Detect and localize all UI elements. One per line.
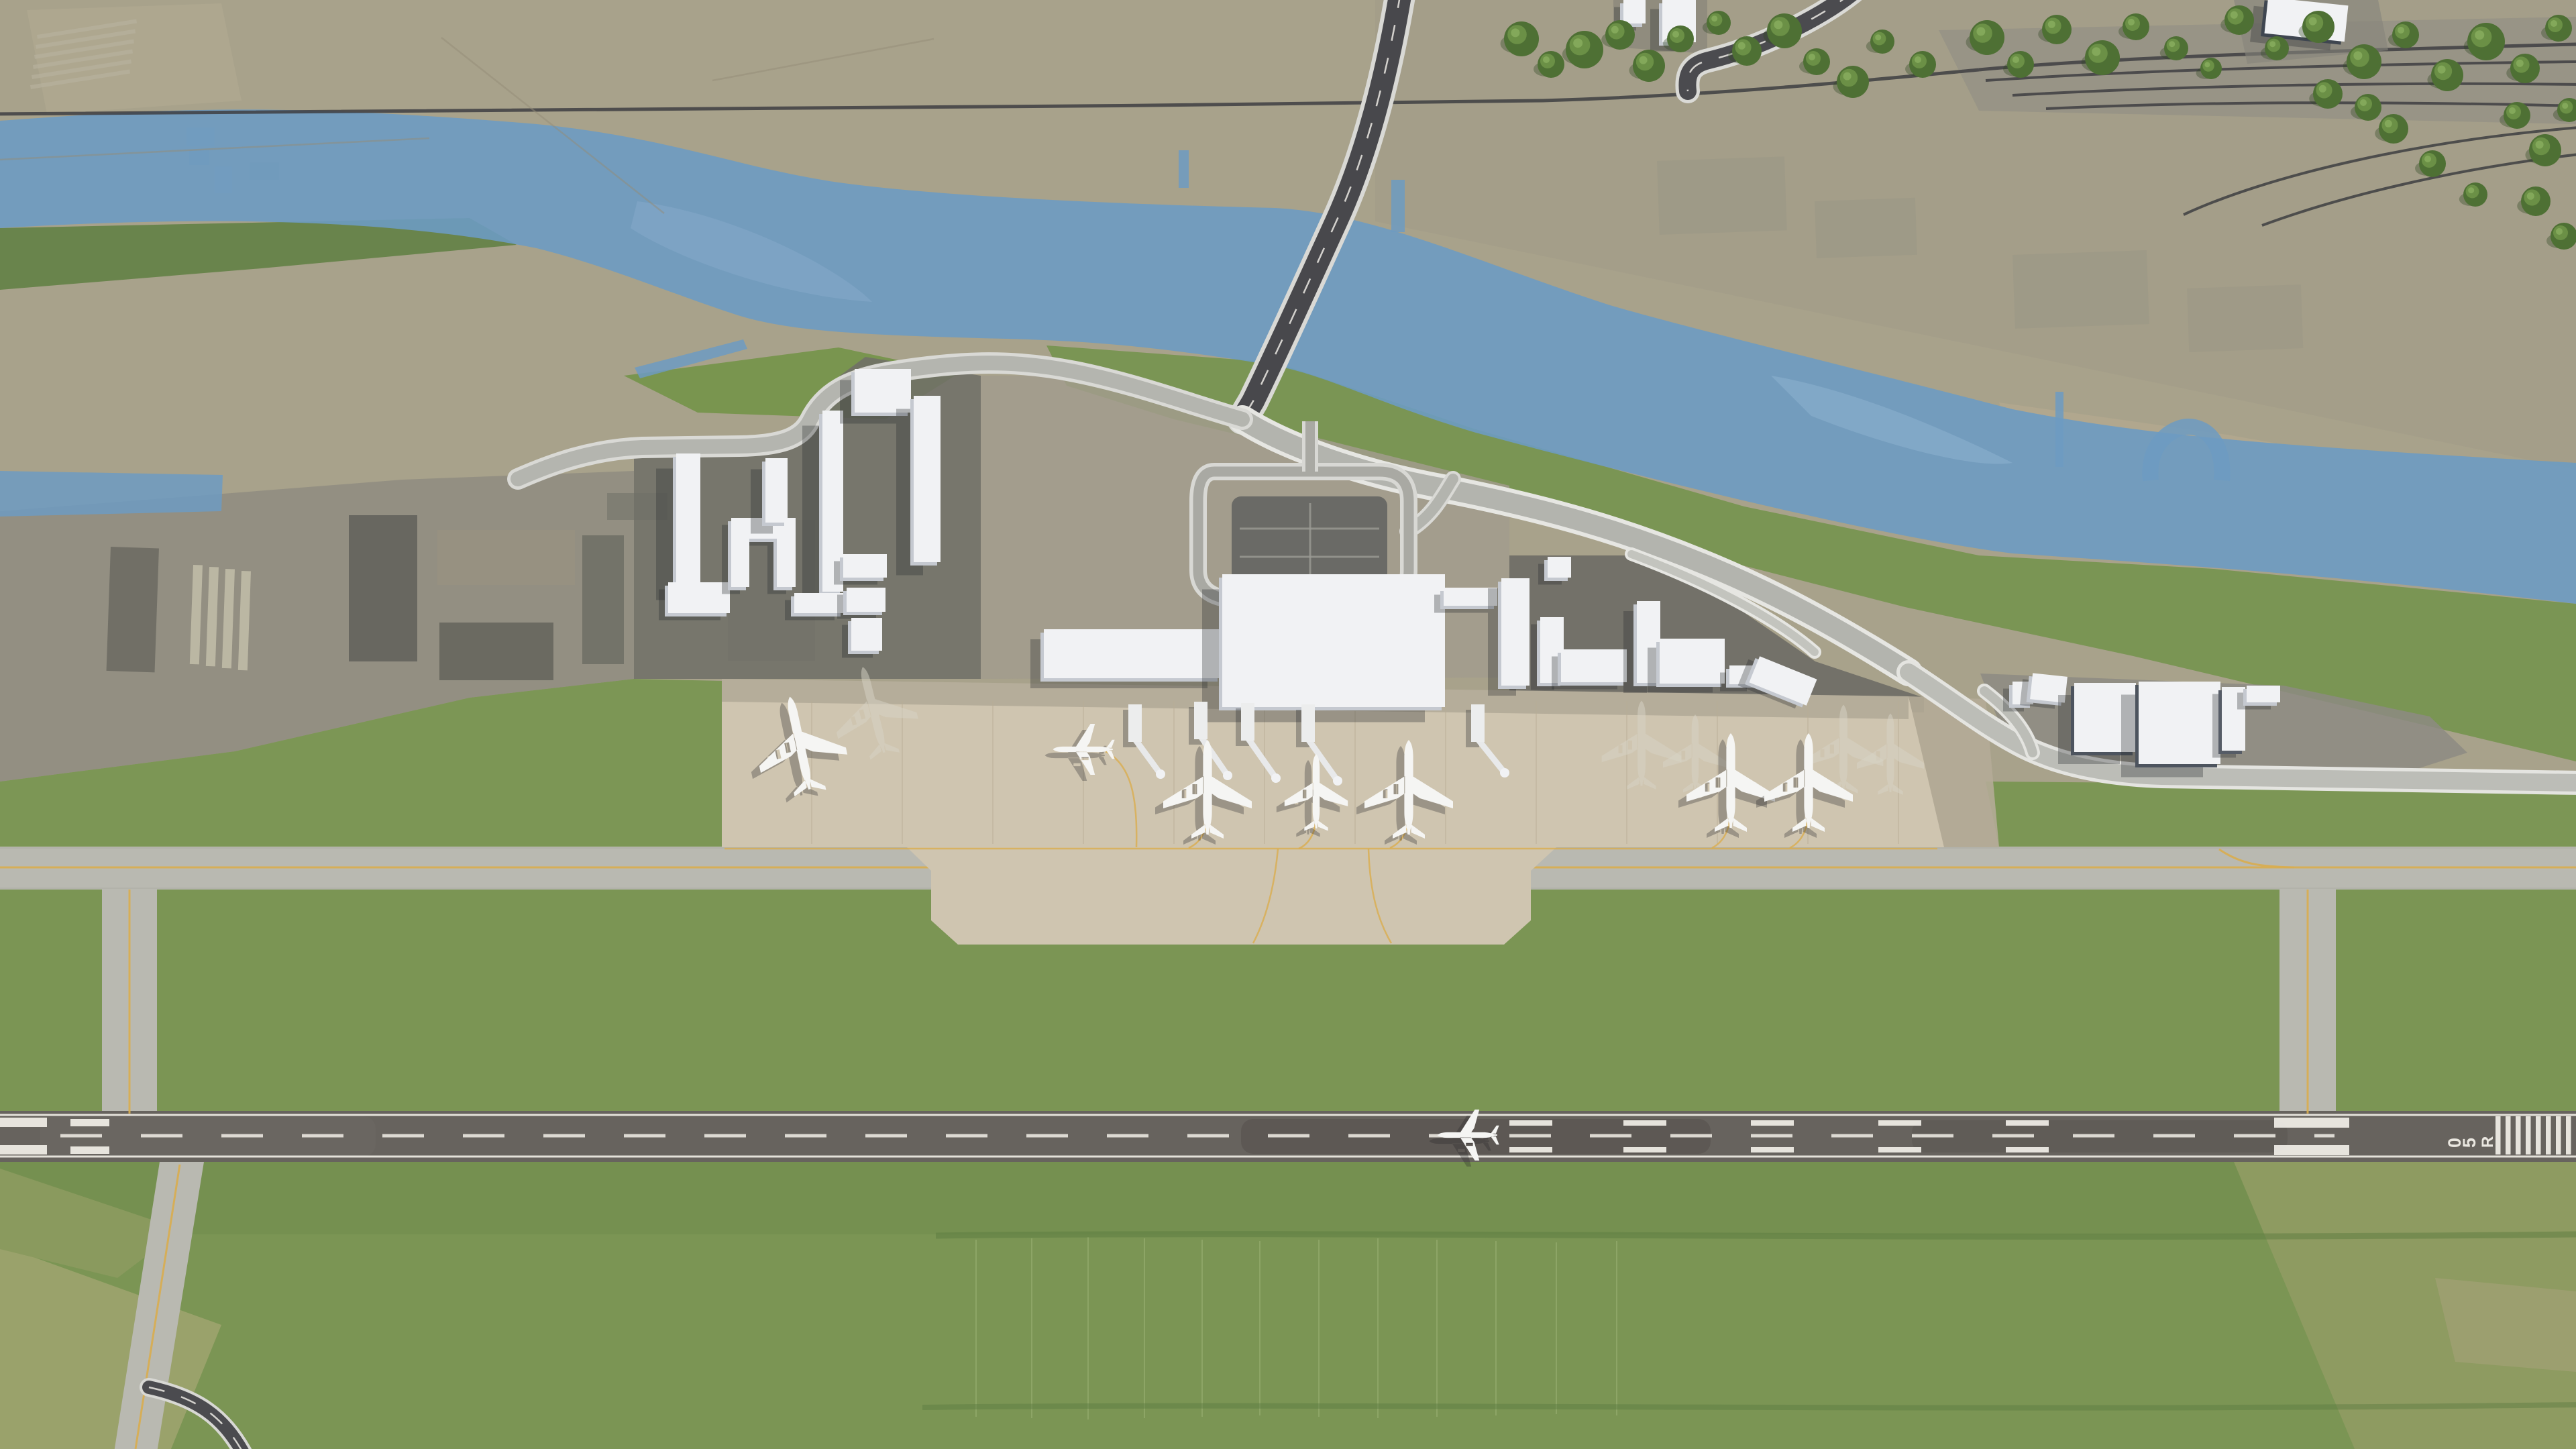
building-roof <box>1660 639 1725 684</box>
tree-canopy-light <box>2353 51 2362 60</box>
field-boundary <box>922 1405 2576 1408</box>
ghost-structure <box>439 623 553 680</box>
tree-canopy-light <box>2475 30 2484 40</box>
tree-canopy-light <box>2556 228 2563 235</box>
tree-canopy-light <box>2204 62 2210 67</box>
building <box>842 618 882 658</box>
ghost-structure <box>107 547 159 672</box>
tree-canopy-light <box>1611 26 1619 34</box>
runway-marking-bar <box>1623 1147 1666 1152</box>
building-roof <box>855 369 911 413</box>
runway-marking-bar <box>1509 1120 1552 1126</box>
runway-marking-bar <box>2506 1116 2511 1155</box>
building-roof <box>777 539 796 587</box>
runway-marking-bar <box>70 1119 109 1126</box>
tree-canopy-light <box>2562 103 2568 109</box>
water-channel <box>2055 392 2063 467</box>
jet-bridge-cab <box>1156 769 1165 779</box>
tree-canopy-light <box>1774 20 1782 29</box>
runway-marking-bar <box>1878 1120 1921 1126</box>
runway-marking-bar <box>2556 1116 2561 1155</box>
building-roof <box>794 593 844 613</box>
tree-canopy-light <box>1672 31 1679 38</box>
building-roof <box>1501 578 1529 686</box>
jet-bridge-cab <box>1271 773 1281 783</box>
jet-bridge-body <box>1301 704 1315 742</box>
tree-canopy-light <box>2360 99 2367 106</box>
building-roof <box>1044 629 1221 678</box>
ghost-structure <box>582 535 624 664</box>
runway-marking-bar <box>2006 1120 2049 1126</box>
tree-canopy-light <box>2468 187 2474 193</box>
runway-marking-bar <box>0 1118 47 1127</box>
building <box>751 458 788 534</box>
building-roof <box>847 588 885 612</box>
runway-designator-digit-1: 5 <box>2459 1138 2479 1148</box>
tree-canopy-light <box>1915 56 1921 63</box>
runway-marking-bar <box>2546 1116 2551 1155</box>
terminal-west-pier <box>1030 629 1221 688</box>
tree-canopy-light <box>2231 11 2238 19</box>
tree-canopy-light <box>1711 15 1717 21</box>
ghost-structure <box>2012 250 2149 329</box>
building <box>896 396 941 576</box>
layer-runway <box>0 1111 2576 1162</box>
building <box>1488 578 1529 696</box>
tree-canopy-light <box>2527 193 2534 200</box>
runway-marking-bar <box>1751 1120 1794 1126</box>
runway-marking-bar <box>2536 1116 2541 1155</box>
scene-svg: 0 5 R <box>0 0 2576 1449</box>
tree-canopy-light <box>2169 41 2175 47</box>
tree-canopy-light <box>1809 54 1815 60</box>
building <box>837 588 885 619</box>
tree-canopy-light <box>1875 34 1881 40</box>
building-roof <box>2139 682 2220 764</box>
building <box>834 554 887 585</box>
water-channel <box>1391 180 1405 232</box>
building <box>659 582 730 621</box>
jet-bridge-body <box>1128 704 1142 742</box>
tree-canopy-light <box>1843 72 1851 80</box>
tree-canopy-light <box>2269 41 2275 47</box>
jet-bridge-body <box>1194 702 1207 739</box>
tree-canopy-light <box>2398 27 2404 34</box>
water-channel <box>1179 150 1189 188</box>
terminal-main <box>1202 574 1445 722</box>
field-boundary <box>936 1234 2576 1237</box>
tree-canopy-light <box>2509 107 2516 114</box>
building-roof <box>676 453 700 585</box>
building <box>785 593 844 621</box>
tree-canopy-light <box>1511 28 1519 37</box>
tree-canopy-light <box>2438 66 2446 74</box>
tree-canopy-light <box>2385 120 2392 127</box>
water-channel <box>0 471 223 517</box>
building <box>1434 588 1497 613</box>
tree-canopy-light <box>1573 38 1582 48</box>
building-roof <box>1561 649 1627 682</box>
building-roof <box>1222 574 1445 707</box>
runway-marking-bar <box>1509 1147 1552 1152</box>
ghost-structure <box>1815 198 1917 258</box>
tree-canopy-light <box>2092 47 2100 56</box>
hangar-east <box>2121 682 2220 777</box>
building-roof <box>843 554 887 578</box>
runway-marking-bar <box>2006 1147 2049 1152</box>
runway-marking-bar <box>2274 1118 2349 1128</box>
building-roof <box>1623 0 1646 23</box>
tree-canopy-light <box>2516 60 2524 67</box>
building-roof <box>914 396 941 562</box>
band-below-runway <box>0 1162 2576 1234</box>
tree-canopy-light <box>2536 141 2544 149</box>
jet-bridge-cab <box>1223 771 1232 780</box>
runway-marking-bar <box>2566 1116 2571 1155</box>
runway-designation: 0 5 R <box>2445 1136 2497 1148</box>
runway-marking-bar <box>1878 1147 1921 1152</box>
tree-canopy-light <box>2012 56 2019 63</box>
tree-canopy-light <box>2551 20 2557 27</box>
runway-marking-bar <box>0 1145 47 1155</box>
tree-canopy-light <box>1543 56 1550 63</box>
aerial-view: 0 5 R <box>0 0 2576 1449</box>
building-roof <box>1548 557 1571 578</box>
runway-marking-bar <box>2516 1116 2521 1155</box>
jet-bridge-cab <box>1500 768 1509 777</box>
building-roof <box>765 458 788 523</box>
runway-designator-letter: R <box>2479 1136 2497 1148</box>
jet-bridge-body <box>1241 703 1254 741</box>
tree-canopy-light <box>2319 85 2326 93</box>
runway-marking-bar <box>2495 1116 2501 1155</box>
building-roof <box>731 539 749 587</box>
tree-canopy-light <box>1738 42 1746 50</box>
building <box>767 539 796 594</box>
ghost-structure <box>2187 284 2303 352</box>
ghost-structure <box>1657 156 1787 235</box>
tree-canopy-light <box>1640 56 1648 64</box>
runway-marking-bar <box>70 1146 109 1154</box>
ghost-structure <box>437 530 575 585</box>
building-roof <box>668 582 730 613</box>
field-bottom-right2 <box>2435 1278 2576 1372</box>
ghost-structure <box>349 515 417 661</box>
runway-marking-bar <box>2526 1116 2531 1155</box>
building-roof <box>851 618 882 651</box>
building <box>1648 639 1725 693</box>
runway-marking-bar <box>2274 1145 2349 1155</box>
tree-canopy-light <box>1976 27 1985 36</box>
building <box>722 539 749 594</box>
building-roof <box>2247 686 2280 702</box>
tree-canopy-light <box>2128 19 2135 25</box>
runway-marking-bar <box>1623 1120 1666 1126</box>
runway-marking-bar <box>1751 1147 1794 1152</box>
jet-bridge-cab <box>1333 776 1342 786</box>
tree-canopy-light <box>2309 17 2317 25</box>
tree-canopy-light <box>2424 156 2431 162</box>
building <box>1552 649 1627 690</box>
building <box>656 453 700 600</box>
tree-canopy-light <box>2048 21 2055 28</box>
jet-bridge-body <box>1471 704 1485 742</box>
